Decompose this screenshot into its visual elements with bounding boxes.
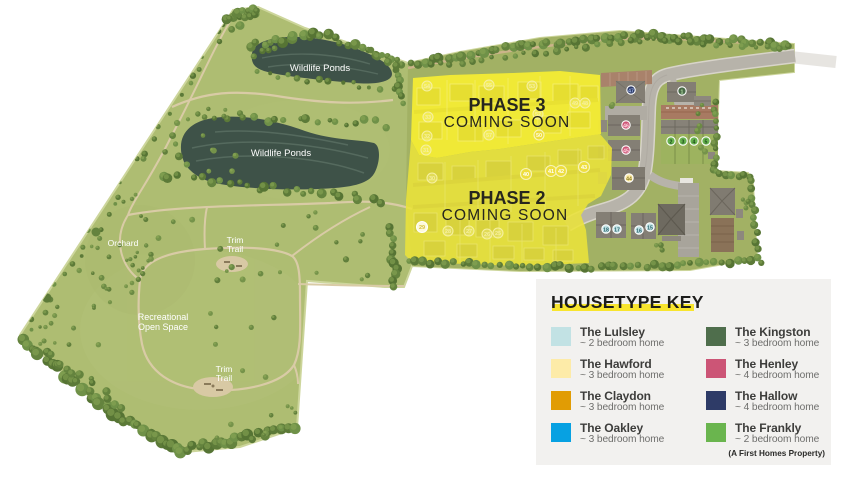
svg-text:49: 49: [572, 101, 578, 107]
svg-text:1: 1: [681, 89, 684, 95]
svg-text:PHASE 3: PHASE 3: [468, 95, 545, 115]
svg-text:28: 28: [445, 229, 451, 235]
svg-text:Trail: Trail: [216, 373, 232, 383]
svg-text:57: 57: [486, 133, 492, 139]
svg-text:Open Space: Open Space: [138, 322, 188, 332]
svg-text:Recreational: Recreational: [138, 312, 189, 322]
svg-text:55: 55: [486, 83, 492, 89]
svg-text:50: 50: [536, 133, 542, 139]
svg-text:43: 43: [581, 165, 587, 171]
svg-text:33: 33: [425, 115, 431, 121]
svg-text:42: 42: [558, 169, 564, 175]
svg-text:40: 40: [523, 172, 529, 178]
svg-text:31: 31: [423, 148, 429, 154]
svg-text:30: 30: [429, 176, 435, 182]
svg-text:53: 53: [529, 84, 535, 90]
svg-text:29: 29: [419, 225, 425, 231]
svg-text:Wildlife Ponds: Wildlife Ponds: [251, 148, 311, 159]
svg-text:16: 16: [636, 228, 642, 234]
svg-text:18: 18: [603, 227, 609, 233]
svg-text:44: 44: [626, 176, 632, 182]
svg-text:Orchard: Orchard: [108, 238, 139, 248]
svg-text:46: 46: [623, 123, 629, 129]
svg-text:PHASE 2: PHASE 2: [468, 188, 545, 208]
svg-text:25: 25: [495, 231, 501, 237]
svg-text:COMING SOON: COMING SOON: [442, 207, 569, 224]
svg-text:Trail: Trail: [227, 244, 243, 254]
svg-text:5: 5: [705, 139, 708, 145]
svg-text:17: 17: [614, 227, 620, 233]
svg-text:15: 15: [647, 225, 653, 231]
svg-text:47: 47: [628, 88, 634, 94]
svg-text:4: 4: [693, 139, 696, 145]
svg-text:41: 41: [548, 169, 554, 175]
svg-text:Wildlife Ponds: Wildlife Ponds: [290, 63, 350, 74]
svg-text:32: 32: [424, 134, 430, 140]
svg-text:3: 3: [682, 139, 685, 145]
svg-text:26: 26: [484, 232, 490, 238]
svg-text:45: 45: [623, 148, 629, 154]
svg-text:48: 48: [582, 101, 588, 107]
svg-text:54: 54: [424, 84, 431, 90]
svg-text:2: 2: [670, 139, 673, 145]
svg-text:27: 27: [466, 229, 472, 235]
svg-text:COMING SOON: COMING SOON: [444, 114, 571, 131]
